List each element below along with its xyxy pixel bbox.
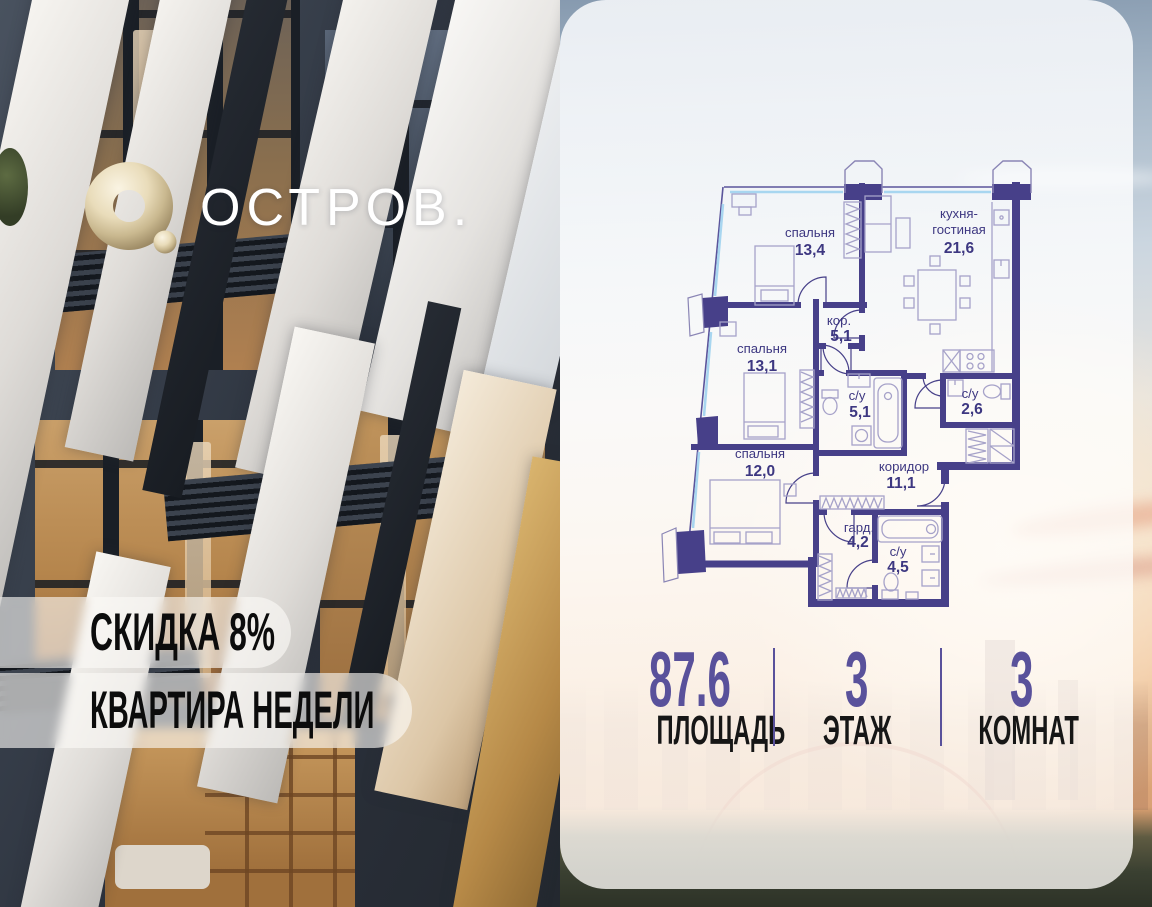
room-area: 4,2 bbox=[847, 534, 869, 551]
room-label: кухня- bbox=[940, 206, 978, 221]
apartment-card[interactable]: спальня 13,4 кухня- гостиная 21,6 кор. 5… bbox=[560, 0, 1133, 889]
room-area: 5,1 bbox=[849, 404, 871, 421]
room-label: с/у bbox=[962, 386, 979, 401]
logo-mark-icon bbox=[84, 161, 178, 255]
apartment-of-week-label: КВАРТИРА НЕДЕЛИ bbox=[90, 680, 374, 741]
room-label: спальня bbox=[737, 341, 787, 356]
room-label: коридор bbox=[879, 459, 929, 474]
discount-badge-label: СКИДКА 8% bbox=[90, 602, 275, 663]
room-area: 21,6 bbox=[944, 240, 975, 257]
stats-divider bbox=[773, 648, 775, 746]
stat-area-value: 87.6 bbox=[610, 640, 770, 702]
room-area: 5,1 bbox=[830, 328, 852, 345]
logo-wordmark: ОСТРОВ. bbox=[200, 178, 473, 238]
room-area: 13,1 bbox=[747, 358, 778, 375]
logo: ОСТРОВ. bbox=[84, 160, 554, 256]
room-label: гард. bbox=[844, 520, 874, 535]
stats-row: 87.6 ПЛОЩАДЬ 3 ЭТАЖ 3 КОМНАТ bbox=[560, 640, 1133, 760]
room-label: с/у bbox=[890, 544, 907, 559]
room-label: гостиная bbox=[932, 222, 986, 237]
floor-plan: спальня 13,4 кухня- гостиная 21,6 кор. 5… bbox=[660, 140, 1060, 640]
stat-floor: 3 ЭТАЖ bbox=[777, 640, 937, 751]
room-label: с/у bbox=[849, 388, 866, 403]
room-area: 12,0 bbox=[745, 463, 775, 480]
stat-area-label: ПЛОЩАДЬ bbox=[610, 710, 770, 751]
building-photo bbox=[0, 0, 560, 907]
room-area: 2,6 bbox=[961, 401, 983, 418]
stat-rooms-label: КОМНАТ bbox=[942, 710, 1102, 751]
stat-floor-value: 3 bbox=[777, 640, 937, 702]
room-area: 13,4 bbox=[795, 242, 826, 259]
stat-rooms: 3 КОМНАТ bbox=[942, 640, 1102, 751]
room-label: спальня bbox=[735, 446, 785, 461]
stat-area: 87.6 ПЛОЩАДЬ bbox=[610, 640, 770, 751]
discount-badge: СКИДКА 8% bbox=[0, 597, 291, 668]
real-estate-promo-banner: ОСТРОВ. СКИДКА 8% КВАРТИРА НЕДЕЛИ bbox=[0, 0, 1152, 907]
room-area: 4,5 bbox=[887, 559, 909, 576]
stat-rooms-value: 3 bbox=[942, 640, 1102, 702]
room-label: кор. bbox=[827, 313, 851, 328]
room-label: спальня bbox=[785, 225, 835, 240]
stat-floor-label: ЭТАЖ bbox=[777, 710, 937, 751]
apartment-of-week-badge: КВАРТИРА НЕДЕЛИ bbox=[0, 673, 412, 748]
room-area: 11,1 bbox=[886, 475, 916, 492]
